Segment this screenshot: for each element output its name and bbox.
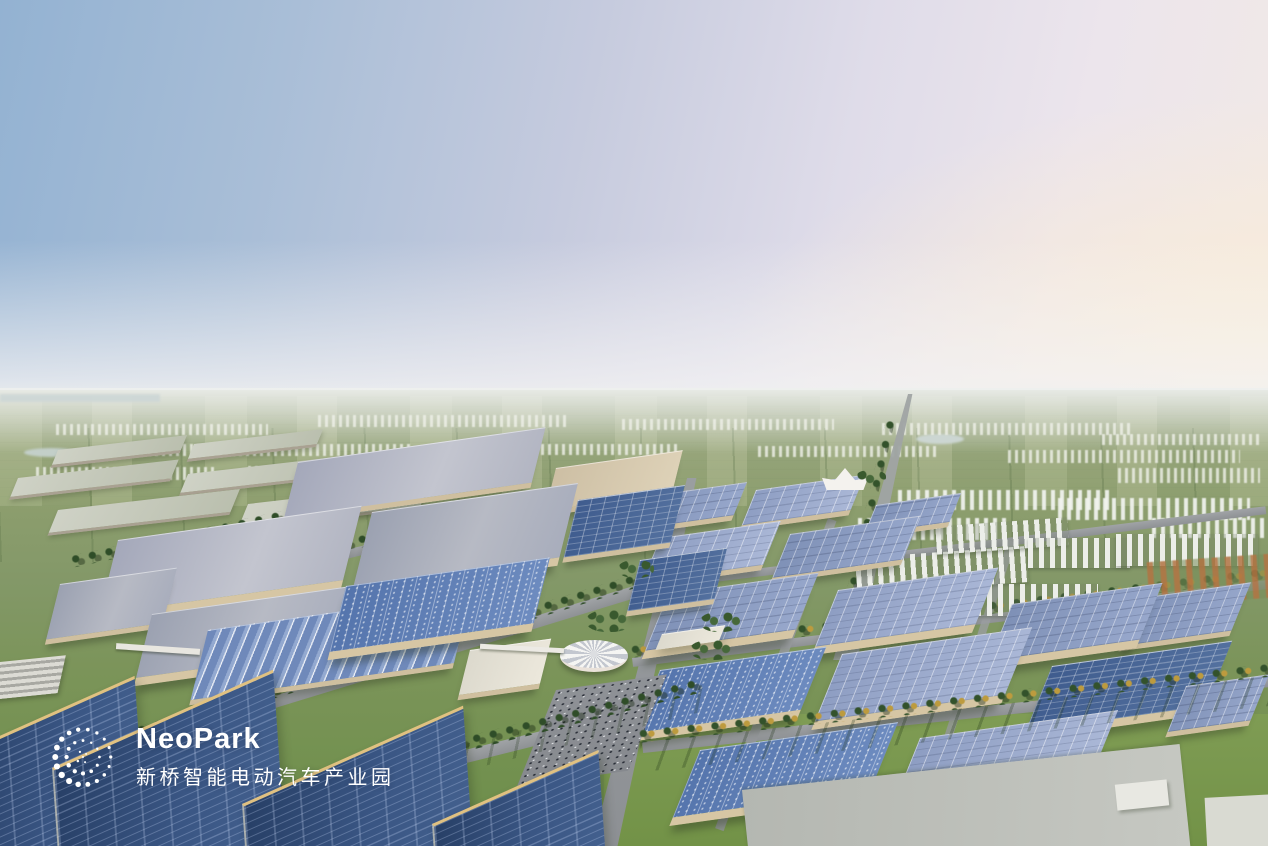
dotted-globe-icon bbox=[46, 720, 120, 794]
logo: NeoPark 新桥智能电动汽车产业园 bbox=[46, 720, 395, 794]
distant-settlement bbox=[56, 424, 268, 435]
tree-grove bbox=[856, 470, 886, 484]
water-strip bbox=[0, 394, 160, 402]
distant-settlement bbox=[758, 446, 940, 457]
round-building bbox=[560, 640, 628, 672]
aerial-render-neopark: NeoPark 新桥智能电动汽车产业园 bbox=[0, 0, 1268, 846]
lake bbox=[916, 434, 964, 444]
distant-settlement bbox=[318, 415, 570, 427]
parking-structure bbox=[0, 655, 66, 699]
distant-settlement bbox=[1008, 450, 1240, 463]
brand-name: NeoPark bbox=[136, 724, 395, 754]
residential-cluster bbox=[1028, 538, 1130, 568]
brand-subtitle: 新桥智能电动汽车产业园 bbox=[136, 761, 395, 790]
distant-settlement bbox=[622, 419, 834, 430]
tree-grove bbox=[618, 560, 654, 578]
distant-settlement bbox=[1102, 434, 1260, 445]
distant-settlement bbox=[882, 423, 1130, 435]
tree-grove bbox=[586, 610, 632, 632]
tree-grove bbox=[700, 612, 740, 632]
distant-settlement bbox=[1118, 468, 1260, 483]
tree-grove bbox=[690, 640, 734, 660]
sky-horizon-fade bbox=[0, 240, 1268, 402]
white-building bbox=[1115, 779, 1169, 810]
white-building bbox=[1205, 794, 1268, 846]
logo-text-block: NeoPark 新桥智能电动汽车产业园 bbox=[136, 724, 395, 790]
